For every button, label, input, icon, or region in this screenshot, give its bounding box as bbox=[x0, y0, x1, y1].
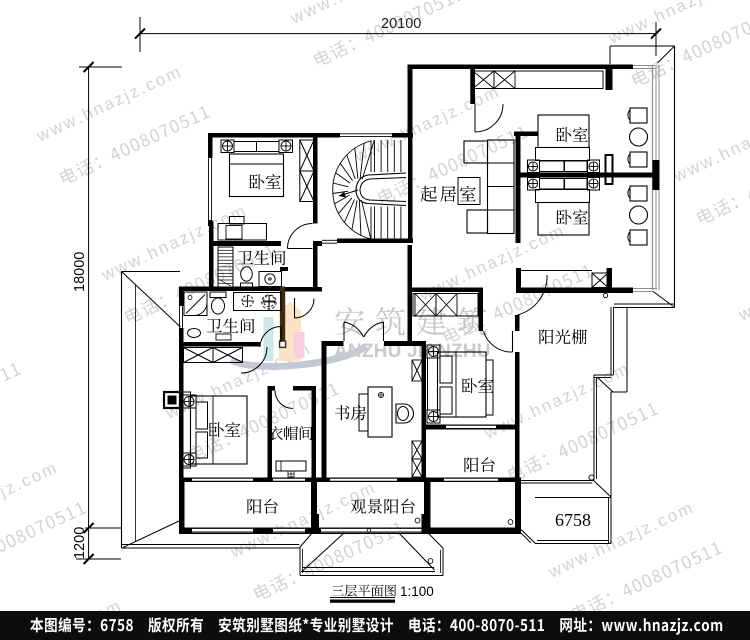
svg-text:1200: 1200 bbox=[72, 527, 88, 559]
svg-text:20100: 20100 bbox=[381, 16, 421, 32]
svg-text:1:100: 1:100 bbox=[400, 584, 434, 599]
svg-text:6758: 6758 bbox=[555, 510, 591, 530]
svg-text:18000: 18000 bbox=[72, 252, 88, 292]
